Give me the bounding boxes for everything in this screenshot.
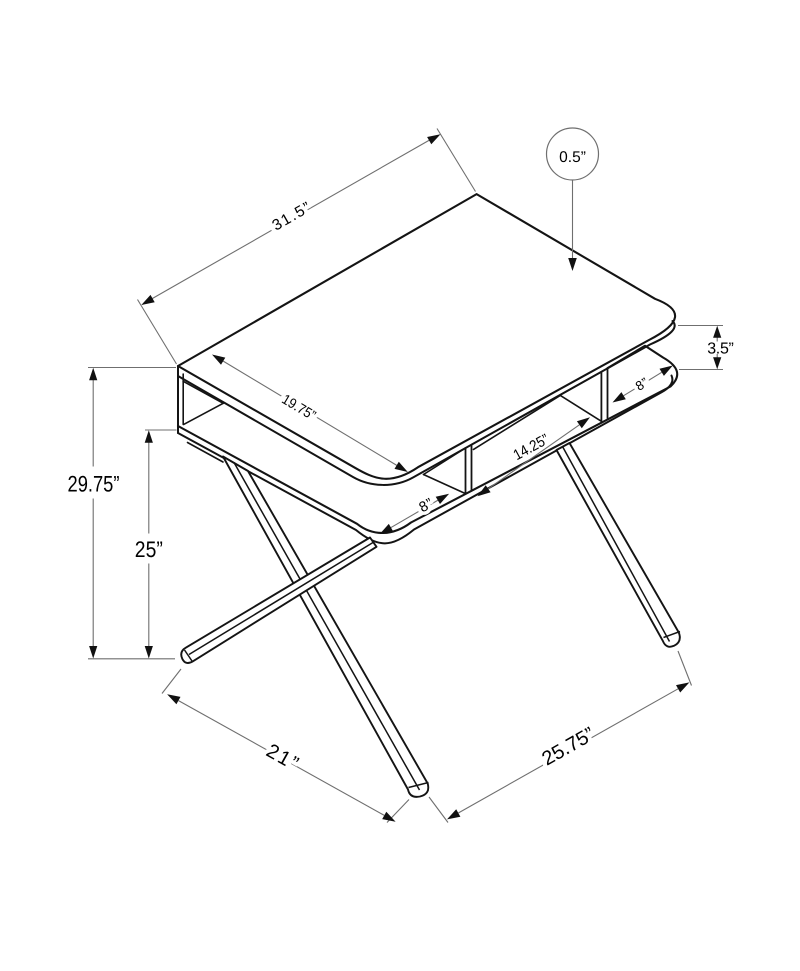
svg-text:25”: 25” <box>135 537 163 562</box>
svg-text:31.5”: 31.5” <box>269 198 315 234</box>
svg-text:8”: 8” <box>417 496 437 517</box>
svg-text:19.75”: 19.75” <box>279 392 319 425</box>
svg-text:0.5”: 0.5” <box>559 149 586 166</box>
svg-text:29.75”: 29.75” <box>68 472 120 497</box>
svg-text:3.5”: 3.5” <box>707 341 733 358</box>
svg-text:25.75”: 25.75” <box>538 723 598 770</box>
svg-text:21”: 21” <box>262 740 303 776</box>
svg-text:8”: 8” <box>633 374 652 393</box>
